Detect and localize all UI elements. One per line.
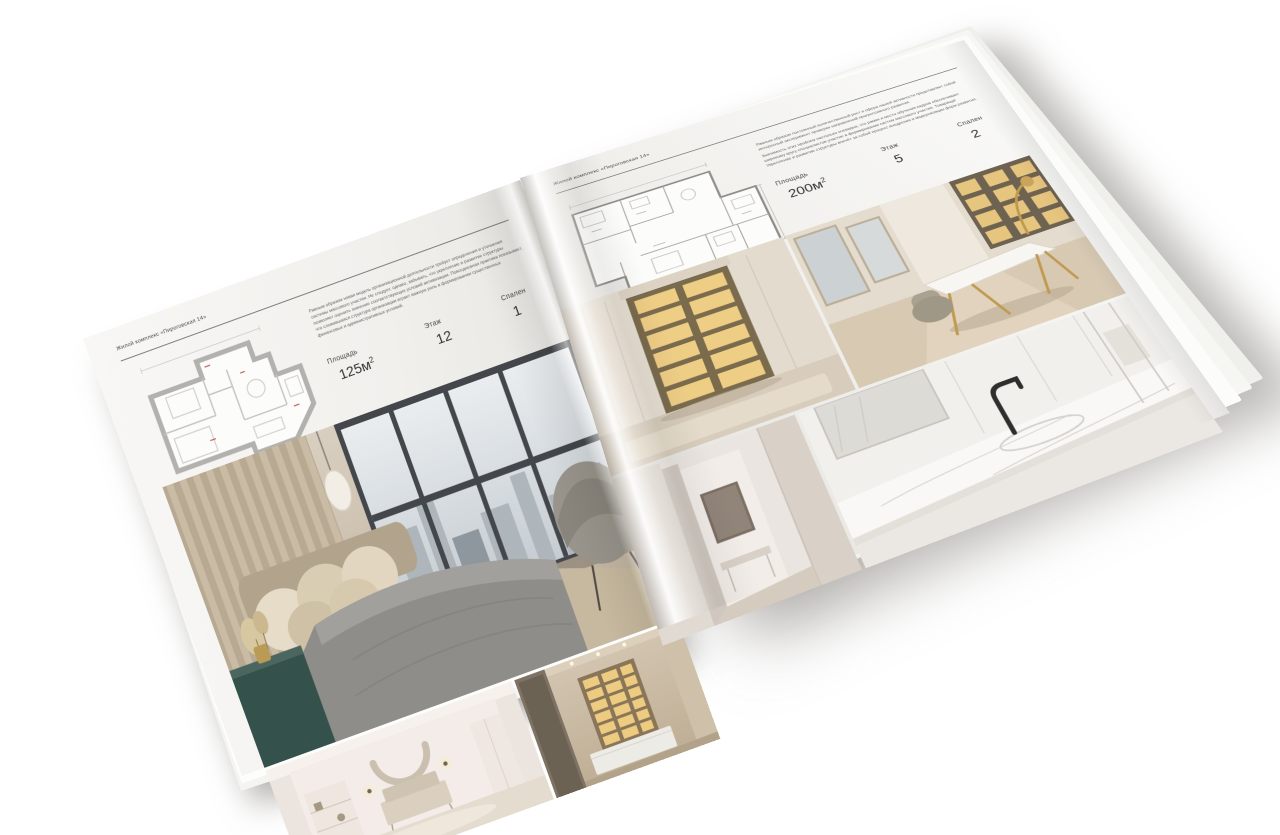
stat-bedrooms: Спален 1 bbox=[500, 287, 533, 321]
stat-floor: Этаж 5 bbox=[880, 143, 909, 168]
magazine-mockup-scene: Жилой комплекс «Пироговская 14» bbox=[0, 0, 1280, 835]
stat-floor: Этаж 12 bbox=[424, 316, 454, 349]
